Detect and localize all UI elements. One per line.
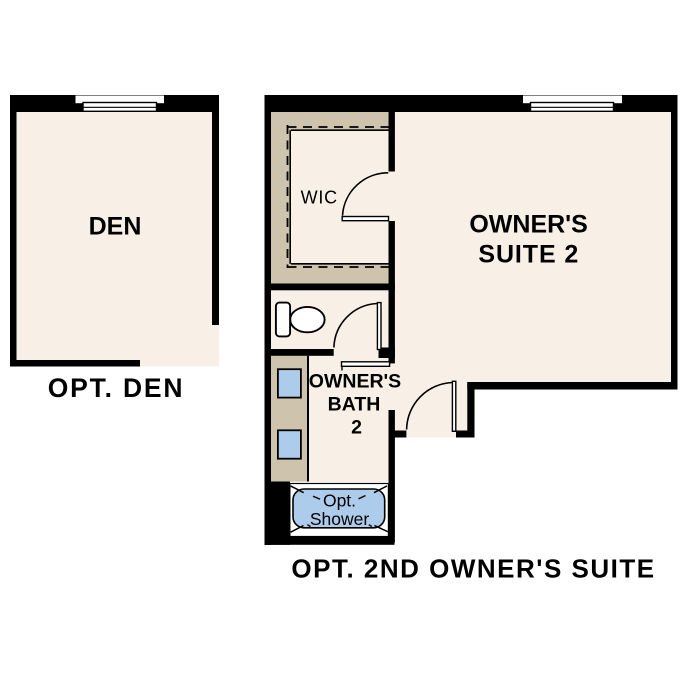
svg-text:DEN: DEN [89, 213, 142, 241]
svg-text:2: 2 [351, 417, 362, 439]
svg-text:OPT. 2ND OWNER'S SUITE: OPT. 2ND OWNER'S SUITE [291, 553, 655, 583]
svg-text:Shower: Shower [310, 509, 370, 529]
svg-text:WIC: WIC [301, 188, 338, 208]
svg-text:BATH: BATH [328, 393, 381, 415]
svg-text:OPT. DEN: OPT. DEN [48, 373, 185, 403]
svg-text:Opt.: Opt. [323, 491, 356, 511]
svg-text:OWNER'S: OWNER'S [469, 210, 587, 238]
svg-text:SUITE 2: SUITE 2 [478, 241, 579, 269]
svg-text:OWNER'S: OWNER'S [309, 371, 401, 393]
